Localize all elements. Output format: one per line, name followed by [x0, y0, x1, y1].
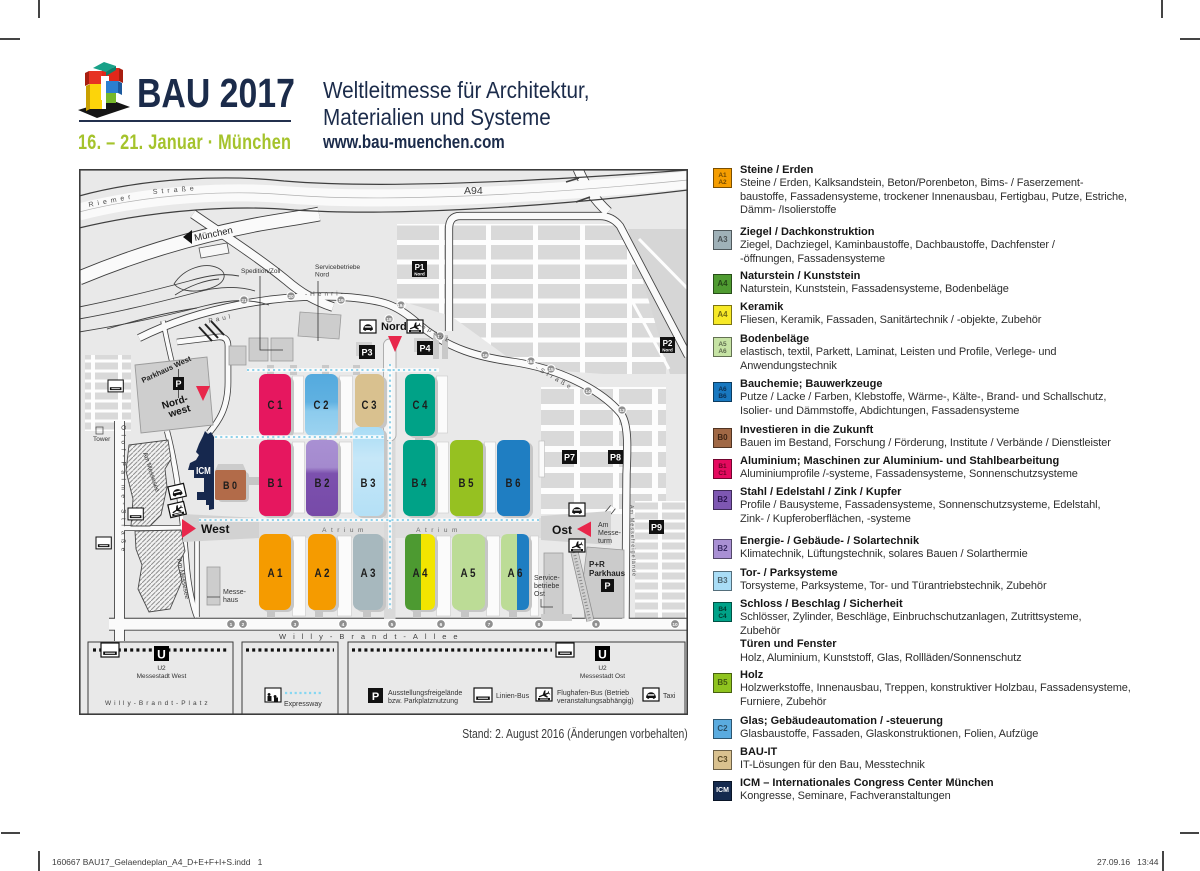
svg-text:P3: P3 [361, 348, 372, 358]
svg-text:Willy-Brandt-Allee: Willy-Brandt-Allee [279, 632, 465, 641]
svg-text:Olof-Palme-Straße: Olof-Palme-Straße [120, 425, 127, 556]
svg-text:P: P [175, 379, 181, 389]
svg-text:P7: P7 [564, 453, 575, 463]
svg-text:haus: haus [223, 597, 239, 604]
svg-text:3: 3 [294, 622, 297, 628]
svg-text:Messe-: Messe- [598, 530, 622, 537]
svg-text:B 5: B 5 [459, 476, 474, 490]
svg-text:Nord: Nord [414, 272, 425, 277]
svg-text:A 6: A 6 [508, 566, 523, 580]
svg-text:Expressway: Expressway [284, 701, 322, 708]
svg-text:B 3: B 3 [361, 476, 376, 490]
svg-text:19: 19 [338, 298, 344, 304]
svg-text:Taxi: Taxi [663, 693, 676, 700]
svg-text:Tower: Tower [93, 436, 111, 443]
svg-text:P8: P8 [610, 453, 621, 463]
svg-text:Willy-Brandt-Platz: Willy-Brandt-Platz [105, 700, 211, 707]
svg-text:C 2: C 2 [314, 398, 329, 412]
svg-text:U2: U2 [157, 665, 166, 672]
svg-text:B 1: B 1 [268, 476, 283, 490]
svg-text:A94: A94 [464, 185, 483, 197]
svg-text:Servicebetriebe: Servicebetriebe [315, 264, 361, 271]
svg-text:Linien-Bus: Linien-Bus [496, 693, 530, 700]
svg-text:P: P [372, 691, 379, 703]
svg-text:-Henri-: -Henri- [305, 290, 346, 298]
svg-text:Flughafen-Bus (Betrieb: Flughafen-Bus (Betrieb [557, 690, 629, 697]
svg-text:Am: Am [598, 522, 609, 529]
svg-text:4: 4 [342, 622, 345, 628]
svg-text:bzw. Parkplatznutzung: bzw. Parkplatznutzung [388, 698, 458, 705]
svg-text:U: U [598, 648, 607, 662]
svg-text:P4: P4 [419, 344, 430, 354]
svg-text:9: 9 [595, 622, 598, 628]
svg-text:U2: U2 [598, 665, 607, 672]
svg-text:10: 10 [672, 622, 678, 628]
svg-text:16: 16 [482, 353, 488, 359]
svg-text:Service-: Service- [534, 575, 560, 582]
svg-text:ICM: ICM [196, 465, 211, 476]
svg-text:18: 18 [386, 317, 392, 323]
svg-text:C 4: C 4 [413, 398, 428, 412]
svg-text:13: 13 [619, 408, 625, 414]
svg-text:7: 7 [488, 622, 491, 628]
svg-text:Messestadt West: Messestadt West [137, 673, 187, 680]
svg-text:A 1: A 1 [268, 566, 283, 580]
svg-text:20: 20 [288, 294, 294, 300]
svg-text:Nord: Nord [381, 321, 407, 333]
svg-text:Nord: Nord [662, 348, 673, 353]
svg-text:21: 21 [241, 298, 247, 304]
svg-text:C 1: C 1 [268, 398, 283, 412]
svg-text:A 5: A 5 [461, 566, 476, 580]
svg-text:6: 6 [440, 622, 443, 628]
svg-text:8: 8 [538, 622, 541, 628]
svg-text:C 3: C 3 [362, 398, 377, 412]
svg-text:Ost: Ost [534, 591, 545, 598]
svg-text:Atrium: Atrium [416, 527, 462, 534]
svg-text:1: 1 [230, 622, 233, 628]
svg-text:B 4: B 4 [412, 476, 427, 490]
svg-text:Parkhaus: Parkhaus [589, 569, 626, 578]
svg-text:A 3: A 3 [361, 566, 376, 580]
svg-text:veranstaltungsabhängig): veranstaltungsabhängig) [557, 698, 634, 705]
svg-text:B 0: B 0 [223, 480, 237, 492]
svg-text:turm: turm [598, 538, 612, 545]
svg-text:P+R: P+R [589, 560, 605, 569]
svg-text:5: 5 [391, 622, 394, 628]
svg-text:Atrium: Atrium [322, 527, 368, 534]
svg-text:14: 14 [585, 389, 591, 395]
svg-text:Spedition/Zoll: Spedition/Zoll [241, 268, 281, 275]
svg-text:B 6: B 6 [506, 476, 521, 490]
svg-text:Nord: Nord [315, 272, 329, 279]
svg-text:Ost: Ost [552, 523, 572, 537]
svg-text:P: P [604, 581, 610, 591]
svg-text:A 2: A 2 [315, 566, 330, 580]
svg-text:West: West [201, 522, 229, 536]
svg-text:betriebe: betriebe [534, 583, 559, 590]
svg-text:Ausstellungsfreigelände: Ausstellungsfreigelände [388, 690, 462, 697]
svg-text:16a: 16a [527, 359, 535, 365]
svg-text:U: U [157, 648, 166, 662]
svg-text:2: 2 [242, 622, 245, 628]
svg-text:Messe-: Messe- [223, 589, 247, 596]
svg-text:P9: P9 [651, 523, 662, 533]
svg-text:B 2: B 2 [315, 476, 330, 490]
svg-text:19a: 19a [397, 303, 405, 309]
svg-text:A 4: A 4 [413, 566, 428, 580]
svg-text:Messestadt Ost: Messestadt Ost [580, 673, 625, 680]
